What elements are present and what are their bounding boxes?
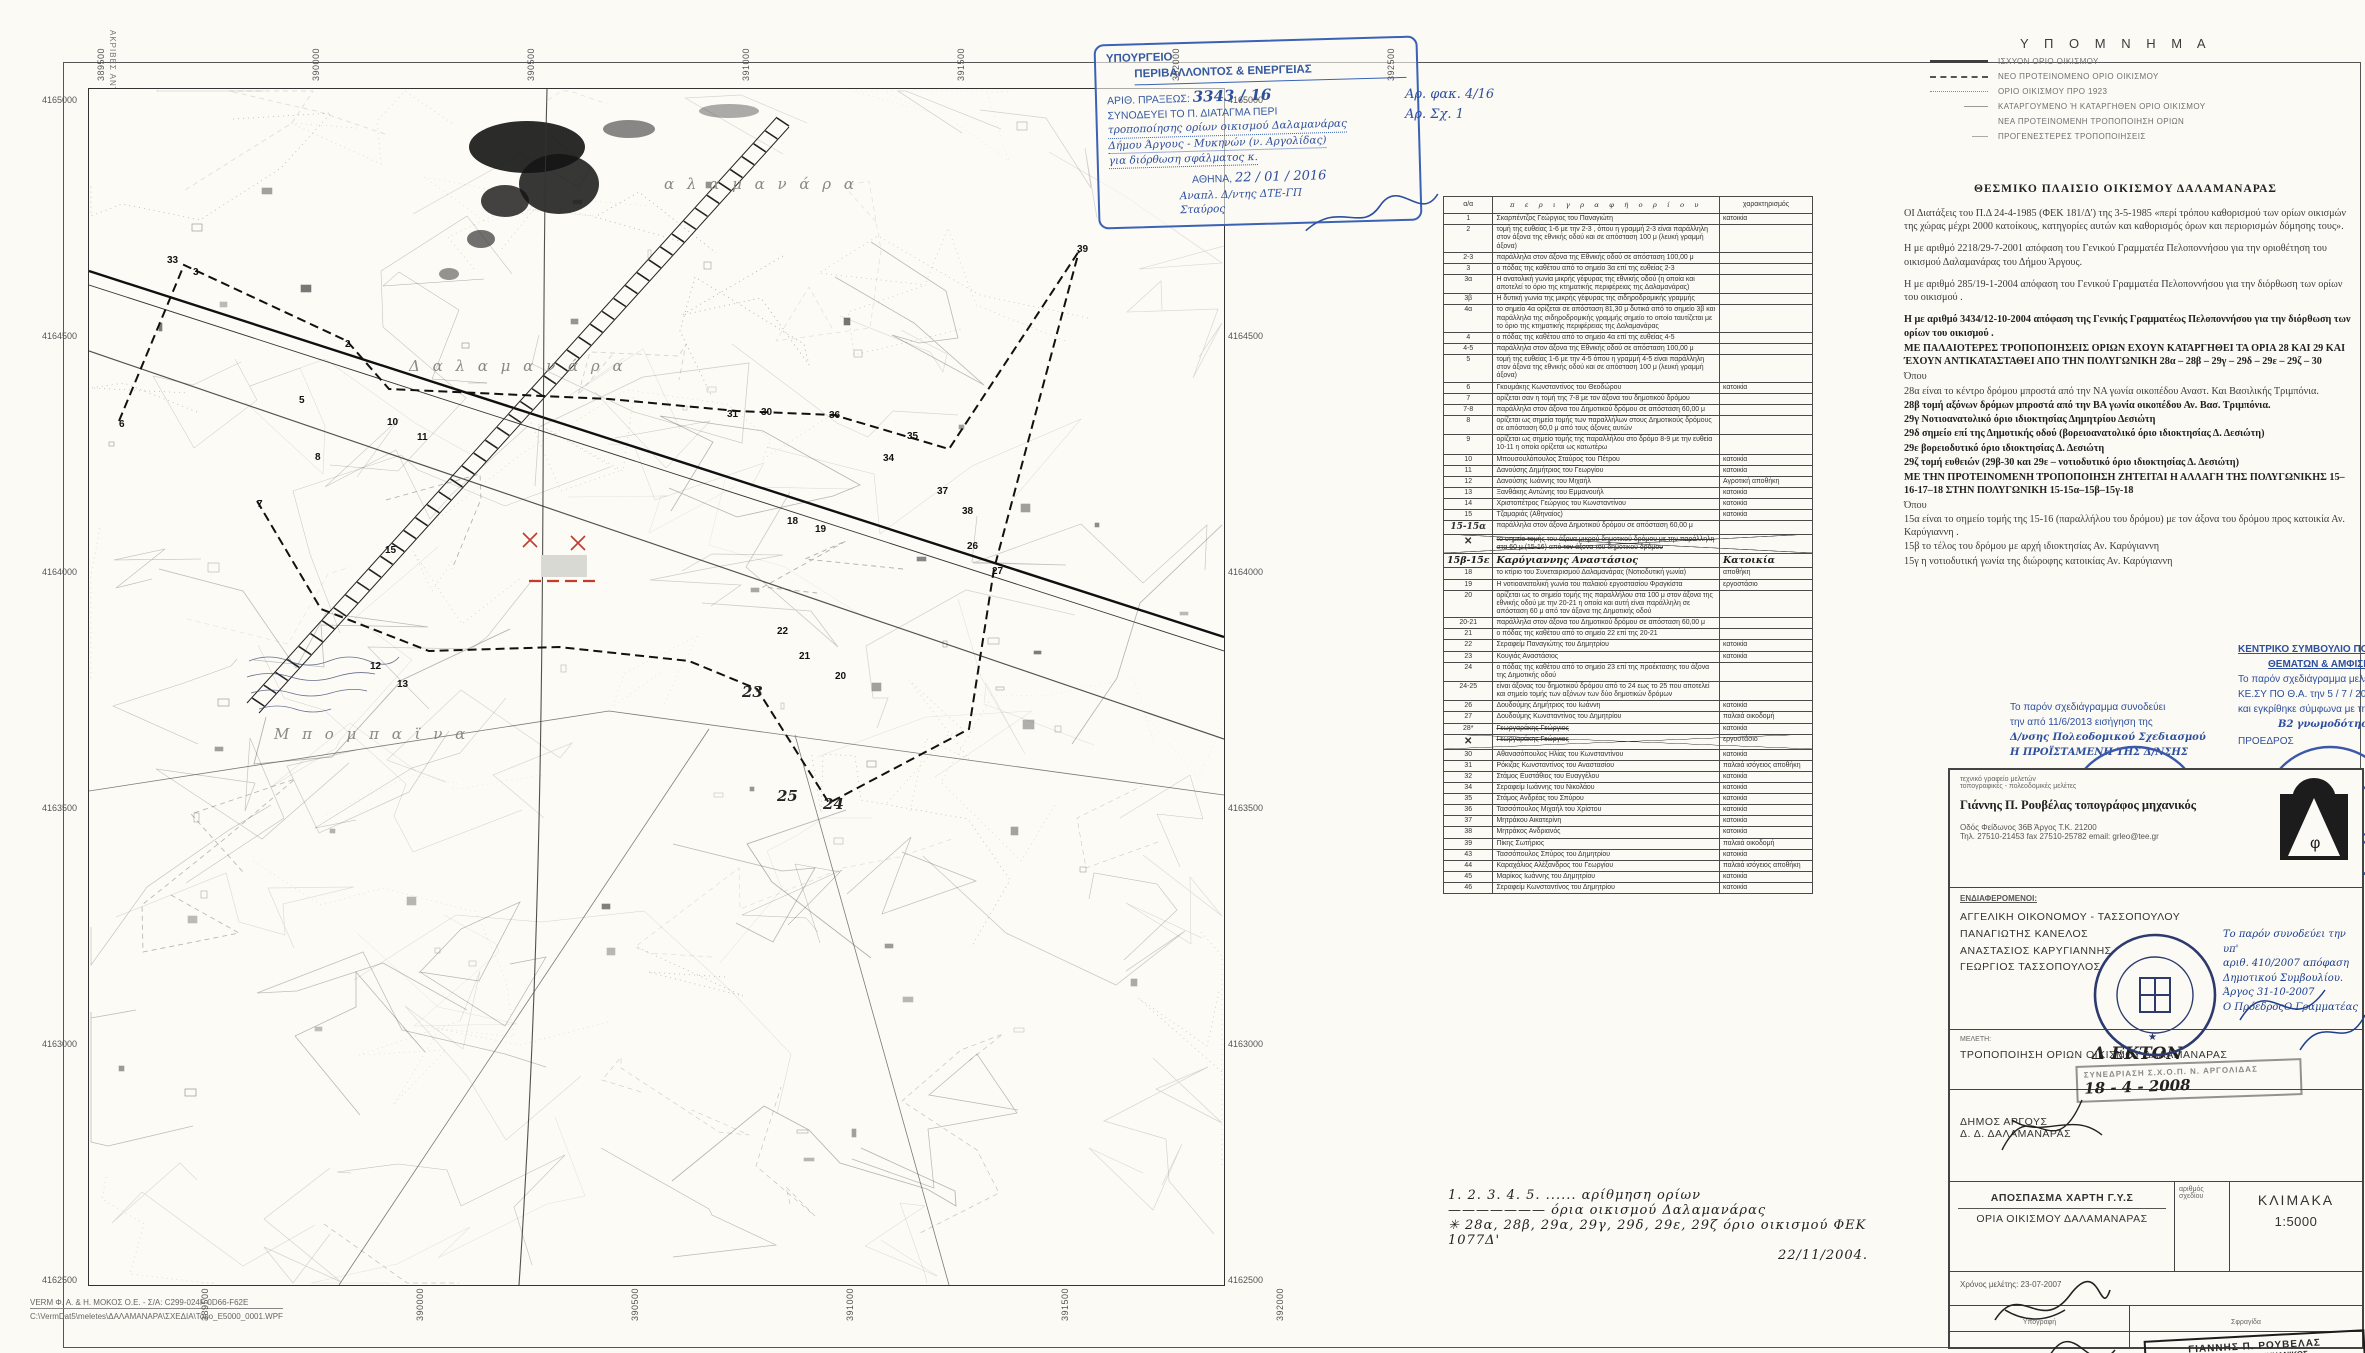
boundary-point-number: 10 [387, 417, 398, 428]
grid-coordinate: 391500 [1060, 1288, 1070, 1321]
cell-description: Γεωργαράκης Γεώργιος [1493, 723, 1720, 734]
cell-characterization: κατοικία [1720, 487, 1813, 498]
table-row: 2-3παράλληλα στον άξονα της Εθνικής οδού… [1444, 252, 1813, 263]
cell-characterization [1720, 662, 1813, 681]
cell-characterization: κατοικία [1720, 382, 1813, 393]
grid-coordinate: 4162500 [1228, 1275, 1263, 1285]
ministry-approval-stamp: ΥΠΟΥΡΓΕΙΟ ΠΕΡΙΒΑΛΛΟΝΤΟΣ & ΕΝΕΡΓΕΙΑΣ ΑΡΙΘ… [1093, 36, 1422, 230]
kesy-title1: ΚΕΝΤΡΙΚΟ ΣΥΜΒΟΥΛΙΟ ΠΟΛΕΟΔΟΜΙΚΩΝ [2238, 642, 2365, 657]
bottom-signature [1985, 1270, 2115, 1340]
cell-description: Χριστοπέτρος Γεώργιος του Κωνσταντίνου [1493, 499, 1720, 510]
boundary-point-number: 36 [829, 410, 840, 421]
legend-swatch-sw-solid [1930, 60, 1988, 63]
grid-coordinate: 390000 [311, 48, 321, 81]
grid-coordinate: 4163000 [1228, 1039, 1263, 1049]
cell-description: ορίζεται ως σημεία τομής των παραλλήλων … [1493, 415, 1720, 434]
framework-paragraph: Η με αριθμό 2218/29-7-2001 απόφαση του Γ… [1904, 242, 2356, 269]
cell-number: 46 [1444, 883, 1493, 894]
cell-characterization [1720, 435, 1813, 454]
grid-coordinate: 4165000 [42, 95, 77, 105]
cell-number: 20 [1444, 590, 1493, 617]
cell-description: Τζαμαριάς (Αθηναίος) [1493, 510, 1720, 521]
table-row: 38Μητράκος Ανδριανόςκατοικία [1444, 827, 1813, 838]
table-row: 12Δανούσης Ιωάννης του ΜιχαήλΑγροτική απ… [1444, 476, 1813, 487]
cell-number: 14 [1444, 499, 1493, 510]
table-row: 5τομή της ευθείας 1-6 με την 4-5 όπου η … [1444, 355, 1813, 382]
table-row: 4-5παράλληλα στον άξονα της Εθνικής οδού… [1444, 343, 1813, 354]
boundary-point-number: 15 [385, 545, 396, 556]
legend-label: ΟΡΙΟ ΟΙΚΙΣΜΟΥ ΠΡΟ 1923 [1998, 87, 2107, 96]
table-row: 3βΗ δυτική γωνία της μικρής γέφυρας της … [1444, 294, 1813, 305]
cell-number: 13 [1444, 487, 1493, 498]
map-legend: Υ Π Ο Μ Ν Η Μ Α ΙΣΧΥΟΝ ΟΡΙΟ ΟΙΚΙΣΜΟΥΝΕΟ … [1930, 36, 2350, 147]
boundary-point-number: 18 [787, 516, 798, 527]
framework-paragraph: 29γ Νοτιοανατολικό όριο ιδιοκτησίας Δημη… [1904, 413, 2356, 426]
grid-coordinate: 392000 [1171, 48, 1181, 81]
institutional-framework: ΘΕΣΜΙΚΟ ΠΛΑΙΣΙΟ ΟΙΚΙΣΜΟΥ ΔΑΛΑΜΑΝΑΡΑΣ ΟΙ … [1904, 182, 2356, 577]
scale-label: ΚΛΙΜΑΚΑ [2240, 1192, 2352, 1208]
legend-swatch-sw-dot [1930, 91, 1988, 92]
dir-stamp-line2: την από 11/6/2013 εισήγηση της [2010, 715, 2220, 730]
cell-number: 35 [1444, 794, 1493, 805]
boundary-point-number: 33 [167, 255, 178, 266]
table-row: 8ορίζεται ως σημεία τομής των παραλλήλων… [1444, 415, 1813, 434]
table-row: 9ορίζεται ως σημείο τομής της παραλλήλου… [1444, 435, 1813, 454]
cell-characterization [1720, 343, 1813, 354]
boundary-point-number: 39 [1077, 244, 1088, 255]
boundary-point-number: 37 [937, 486, 948, 497]
cell-description: Στάμος Ανδρέας του Σπύρου [1493, 794, 1720, 805]
cell-number: 24-25 [1444, 682, 1493, 701]
handwritten-number: 23 [742, 683, 763, 701]
cell-characterization: εργοστάσιο [1720, 579, 1813, 590]
cell-description: ορίζεται ως το σημείο τομής της παραλλήλ… [1493, 590, 1720, 617]
cell-number: 28* [1444, 723, 1493, 734]
grid-coordinate: 391500 [956, 48, 966, 81]
map-canvas: 3332567810111213153130363534373839272618… [88, 88, 1225, 1286]
cell-characterization [1720, 332, 1813, 343]
cell-description: Σεραφείμ Ιωάννης του Νικολάου [1493, 782, 1720, 793]
cell-description: Δουδούμης Δημήτριος του Ιωάννη [1493, 701, 1720, 712]
framework-paragraph: 15γ η νοτιοδυτική γωνία της διώροφης κατ… [1904, 555, 2356, 568]
grid-coordinate: 4163000 [42, 1039, 77, 1049]
table-row: 7-8παράλληλα στον άξονα του Δημοτικού δρ… [1444, 404, 1813, 415]
cell-description: Τασσόπουλος Μιχαήλ του Χρίστου [1493, 805, 1720, 816]
table-row: 4ατο σημείο 4α ορίζεται σε απόσταση 81,3… [1444, 305, 1813, 332]
cell-description: Κουγιάς Αναστάσιος [1493, 651, 1720, 662]
cell-number: 39 [1444, 838, 1493, 849]
legend-label: ΙΣΧΥΟΝ ΟΡΙΟ ΟΙΚΙΣΜΟΥ [1998, 57, 2099, 66]
cell-characterization [1720, 618, 1813, 629]
handwritten-number: 25 [777, 787, 798, 805]
place-name-label: α λ α μ α ν ά ρ α [664, 175, 858, 193]
boundary-point-number: 34 [883, 453, 894, 464]
table-row: 15-15απαράλληλα στον άξονα Δημοτικού δρό… [1444, 521, 1813, 535]
cell-number: 19 [1444, 579, 1493, 590]
table-row: 6Γκουμάκης Κωνσταντίνος του Θεοδώρουκατο… [1444, 382, 1813, 393]
legend-swatch-sw-tick [1972, 136, 1988, 137]
handwritten-table-notes: 1. 2. 3. 4. 5. ...... αρίθμηση ορίων————… [1448, 1188, 1868, 1263]
cell-number: 45 [1444, 872, 1493, 883]
cell-description: Σεραφείμ Κωνσταντίνος του Δημητρίου [1493, 883, 1720, 894]
kesy-line1: Το παρόν σχεδιάγραμμα μελετήθηκε από το [2238, 672, 2365, 687]
cell-description: Τασσόπουλος Σπύρος του Δημητρίου [1493, 849, 1720, 860]
legend-swatch-sw-dash [1930, 76, 1988, 78]
cell-description: Η νοτιοανατολική γωνία του παλαιού εργοσ… [1493, 579, 1720, 590]
grid-coordinate: 4164500 [1228, 331, 1263, 341]
table-row: 23Κουγιάς Αναστάσιοςκατοικία [1444, 651, 1813, 662]
cell-characterization: κατοικία [1720, 827, 1813, 838]
table-row: 3αΗ ανατολική γωνία μικρής γέφυρας της ε… [1444, 274, 1813, 293]
cell-number: 5 [1444, 355, 1493, 382]
table-note: 22/11/2004. [1778, 1248, 1868, 1263]
secondary-road [89, 351, 1224, 739]
table-row: ✕το σημείο τομής του άξονα μικρού δημοτι… [1444, 534, 1813, 553]
cell-number: 26 [1444, 701, 1493, 712]
plot-file-path: C:\VermDat5\meletes\ΔΑΛΑΜΑΝΑΡΑ\ΣΧΕΔΙΑ\To… [30, 1312, 283, 1321]
cell-number: 10 [1444, 454, 1493, 465]
framework-paragraph: ΜΕ ΤΗΝ ΠΡΟΤΕΙΝΟΜΕΝΗ ΤΡΟΠΟΠΟΙΗΣΗ ΖΗΤΕΙΤΑΙ… [1904, 471, 2356, 498]
file-number: Αρ. φακ. 4/16 [1405, 85, 1494, 105]
cell-description: παράλληλα στον άξονα του Δημοτικού δρόμο… [1493, 404, 1720, 415]
boundary-point-number: 35 [907, 431, 918, 442]
office-logo: φ [2278, 776, 2350, 868]
cell-description: Καραχάλιος Αλέξανδρος του Γεωργίου [1493, 860, 1720, 871]
boundary-points-table: α/α π ε ρ ι γ ρ α φ ή ο ρ ί ο υ χαρακτηρ… [1443, 196, 1813, 894]
table-row: 31Ρόκιζας Κωνσταντίνος του Αναστασίουπαλ… [1444, 760, 1813, 771]
boundary-point-number: 5 [299, 395, 305, 406]
cell-number: 7-8 [1444, 404, 1493, 415]
cell-number: 31 [1444, 760, 1493, 771]
legend-item: ΝΕΟ ΠΡΟΤΕΙΝΟΜΕΝΟ ΟΡΙΟ ΟΙΚΙΣΜΟΥ [1930, 72, 2350, 81]
boundary-point-number: 6 [119, 419, 125, 430]
interested-header: ΕΝΔΙΑΦΕΡΟΜΕΝΟΙ: [1960, 894, 2352, 903]
boundary-point-number: 31 [727, 409, 738, 420]
cell-characterization [1720, 355, 1813, 382]
cell-description: Η δυτική γωνία της μικρής γέφυρας της σι… [1493, 294, 1720, 305]
cell-description: Αθανασόπουλος Ηλίας του Κωνσταντίνου [1493, 749, 1720, 760]
table-row: 26Δουδούμης Δημήτριος του Ιωάννηκατοικία [1444, 701, 1813, 712]
grid-coordinate: 390000 [415, 1288, 425, 1321]
framework-paragraph: 15β το τέλος του δρόμου με αρχή ιδιοκτησ… [1904, 540, 2356, 553]
cell-number: 7 [1444, 393, 1493, 404]
cell-description: Δουδούμης Κωνσταντίνος του Δημητρίου [1493, 712, 1720, 723]
cell-description: τομή της ευθείας 1-6 με την 2-3 , όπου η… [1493, 225, 1720, 252]
cell-description: Ρόκιζας Κωνσταντίνος του Αναστασίου [1493, 760, 1720, 771]
apospasma-line2: ΟΡΙΑ ΟΙΚΙΣΜΟΥ ΔΑΛΑΜΑΝΑΡΑΣ [1958, 1208, 2166, 1225]
cell-characterization: κατοικία [1720, 214, 1813, 225]
cell-characterization: κατοικία [1720, 749, 1813, 760]
cell-characterization: Αγροτική αποθήκη [1720, 476, 1813, 487]
cell-number: 30 [1444, 749, 1493, 760]
cell-description: Η ανατολική γωνία μικρής γέφυρας της εθν… [1493, 274, 1720, 293]
sheet-number-note: Αρ. Σχ. 1 [1405, 105, 1494, 125]
cell-number: 4-5 [1444, 343, 1493, 354]
cell-description: Πίκης Σωτήριος [1493, 838, 1720, 849]
cell-description: παράλληλα στον άξονα του Δημοτικού δρόμο… [1493, 618, 1720, 629]
grid-coordinate: 389500 [200, 1288, 210, 1321]
table-row: 4ο πόδας της καθέτου από το σημείο 4α επ… [1444, 332, 1813, 343]
cell-characterization: κατοικία [1720, 640, 1813, 651]
cell-number: 2-3 [1444, 252, 1493, 263]
dir-stamp-line1: Το παρόν σχεδιάγραμμα συνοδεύει [2010, 700, 2220, 715]
legend-item: ΚΑΤΑΡΓΟΥΜΕΝΟ Ή ΚΑΤΑΡΓΗΘΕΝ ΟΡΙΟ ΟΙΚΙΣΜΟΥ [1930, 102, 2350, 111]
cell-number: 4α [1444, 305, 1493, 332]
cell-number: 23 [1444, 651, 1493, 662]
legend-title: Υ Π Ο Μ Ν Η Μ Α [2020, 36, 2350, 51]
cell-characterization: κατοικία [1720, 701, 1813, 712]
council-note-1: Το παρόν συνοδεύει την υπ' [2223, 928, 2358, 957]
cell-characterization: κατοικία [1720, 816, 1813, 827]
revision-marks-red [523, 533, 595, 581]
cell-characterization: κατοικία [1720, 872, 1813, 883]
boundary-point-number: 7 [257, 499, 263, 510]
table-row: ✕Γεωργαράκης Γεώργιοςεργοστάσιο [1444, 734, 1813, 749]
boundary-point-number: 11 [417, 432, 428, 443]
cell-description: είναι άξονας του δημοτικού δρόμου από το… [1493, 682, 1720, 701]
cell-description: παράλληλα στον άξονα της Εθνικής οδού σε… [1493, 252, 1720, 263]
boundary-point-number: 22 [777, 626, 788, 637]
cell-characterization: κατοικία [1720, 499, 1813, 510]
cell-description: παράλληλα στον άξονα της Εθνικής οδού σε… [1493, 343, 1720, 354]
kesy-title2: ΘΕΜΑΤΩΝ & ΑΜΦΙΣΒΗΤΗΣΕΩΝ [2268, 657, 2365, 672]
table-row: 18το κτίριο του Συνεταιρισμού Δαλαμανάρα… [1444, 568, 1813, 579]
cell-number: 3β [1444, 294, 1493, 305]
council-signatures [2230, 960, 2365, 1070]
table-row: 14Χριστοπέτρος Γεώργιος του Κωνσταντίνου… [1444, 499, 1813, 510]
cell-number: 32 [1444, 771, 1493, 782]
place-name-label: Δ α λ α μ α ν ά ρ α [409, 357, 627, 375]
table-row: 3ο πόδας της καθέτου από το σημείο 3α επ… [1444, 263, 1813, 274]
cell-description: Δανούσης Ιωάννης του Μιχαήλ [1493, 476, 1720, 487]
table-row: 20-21παράλληλα στον άξονα του Δημοτικού … [1444, 618, 1813, 629]
framework-paragraph: 29ζ τομή ευθειών (29β-30 και 29ε – νοτιο… [1904, 456, 2356, 469]
cell-characterization [1720, 393, 1813, 404]
dekton-signature [1992, 1080, 2112, 1170]
framework-paragraph: ΜΕ ΠΑΛΑΙΟΤΕΡΕΣ ΤΡΟΠΟΠΟΙΗΣΕΙΣ ΟΡΙΩΝ ΕΧΟΥΝ… [1904, 342, 2356, 369]
svg-text:★: ★ [2148, 1032, 2157, 1043]
cell-characterization: κατοικία [1720, 794, 1813, 805]
boundary-point-number: 8 [315, 452, 321, 463]
cell-description: Μητράκου Αικατερίνη [1493, 816, 1720, 827]
cell-number: 15-15α [1444, 521, 1493, 535]
table-row: 37Μητράκου Αικατερίνηκατοικία [1444, 816, 1813, 827]
legend-label: ΝΕΟ ΠΡΟΤΕΙΝΟΜΕΝΟ ΟΡΙΟ ΟΙΚΙΣΜΟΥ [1998, 72, 2159, 81]
cell-characterization: αποθήκη [1720, 568, 1813, 579]
table-row: 15Τζαμαριάς (Αθηναίος)κατοικία [1444, 510, 1813, 521]
table-row: 28*Γεωργαράκης Γεώργιοςκατοικία [1444, 723, 1813, 734]
cell-characterization: παλαιά οικοδομή [1720, 712, 1813, 723]
cell-characterization [1720, 404, 1813, 415]
table-row: 24-25είναι άξονας του δημοτικού δρόμου α… [1444, 682, 1813, 701]
boundary-point-number: 30 [761, 407, 772, 418]
table-row: 35Στάμος Ανδρέας του Σπύρουκατοικία [1444, 794, 1813, 805]
cell-number: 21 [1444, 629, 1493, 640]
cell-characterization: κατοικία [1720, 465, 1813, 476]
cell-number: 36 [1444, 805, 1493, 816]
table-row: 27Δουδούμης Κωνσταντίνος του Δημητρίουπα… [1444, 712, 1813, 723]
framework-paragraph: 29δ σημείο επί της Δημοτικής οδού (βορει… [1904, 427, 2356, 440]
cell-characterization [1720, 521, 1813, 535]
cell-description: το σημείο 4α ορίζεται σε απόσταση 81,30 … [1493, 305, 1720, 332]
framework-paragraph: 29ε βορειοδυτικό όριο ιδιοκτησίας Δ. Δεσ… [1904, 442, 2356, 455]
cell-characterization [1720, 274, 1813, 293]
col-header-num: α/α [1444, 197, 1493, 214]
legend-item: ΝΕΑ ΠΡΟΤΕΙΝΟΜΕΝΗ ΤΡΟΠΟΠΟΙΗΣΗ ΟΡΙΩΝ [1930, 117, 2350, 126]
table-row: 46Σεραφείμ Κωνσταντίνος του Δημητρίουκατ… [1444, 883, 1813, 894]
framework-paragraph: 15α είναι το σημείο τομής της 15-16 (παρ… [1904, 513, 2356, 540]
cell-description: το σημείο τομής του άξονα μικρού δημοτικ… [1493, 534, 1720, 553]
table-row: 36Τασσόπουλος Μιχαήλ του Χρίστουκατοικία [1444, 805, 1813, 816]
cell-characterization: κατοικία [1720, 849, 1813, 860]
framework-paragraph: ΟΙ Διατάξεις του Π.Δ 24-4-1985 (ΦΕΚ 181/… [1904, 207, 2356, 234]
cell-number: 44 [1444, 860, 1493, 871]
table-row: 30Αθανασόπουλος Ηλίας του Κωνσταντίνουκα… [1444, 749, 1813, 760]
cell-description: ο πόδας της καθέτου από το σημείο 3α επί… [1493, 263, 1720, 274]
cell-characterization: παλαιά ισόγειος αποθήκη [1720, 860, 1813, 871]
boundary-point-number: 26 [967, 541, 978, 552]
cell-characterization [1720, 534, 1813, 553]
cell-number: 22 [1444, 640, 1493, 651]
cell-characterization: κατοικία [1720, 782, 1813, 793]
plot-software-id: VERM Φ. Α. & Η. ΜΟΚΟΣ Ο.Ε. - Σ/Α: C299-0… [30, 1298, 283, 1309]
cell-characterization [1720, 415, 1813, 434]
interested-party: ΑΓΓΕΛΙΚΗ ΟΙΚΟΝΟΜΟΥ - ΤΑΣΣΟΠΟΥΛΟΥ [1960, 909, 2352, 926]
table-row: 39Πίκης Σωτήριοςπαλαιά οικοδομή [1444, 838, 1813, 849]
topographic-map-drawing [89, 89, 1224, 1285]
cell-number: 38 [1444, 827, 1493, 838]
village-road [519, 89, 547, 1285]
cell-characterization: κατοικία [1720, 771, 1813, 782]
cell-description: παράλληλα στον άξονα Δημοτικού δρόμου σε… [1493, 521, 1720, 535]
grid-coordinate: 4164500 [42, 331, 77, 341]
cell-description: Μπουσουλόπουλος Σταύρος του Πέτρου [1493, 454, 1720, 465]
table-row: 1Σκαρπέντζος Γεώργιος του Παναγιώτηκατοι… [1444, 214, 1813, 225]
kesy-line2: ΚΕ.ΣΥ ΠΟ Θ.Α. την 5 / 7 / 2013 [2238, 689, 2365, 700]
apospasma-line1: ΑΠΟΣΠΑΣΜΑ ΧΑΡΤΗ Γ.Υ.Σ [1958, 1192, 2166, 1204]
cell-characterization: παλαιά οικοδομή [1720, 838, 1813, 849]
table-note: ✳ 28α, 28β, 29α, 29γ, 29δ, 29ε, 29ζ όριο… [1448, 1218, 1868, 1248]
table-row: 34Σεραφείμ Ιωάννης του Νικολάουκατοικία [1444, 782, 1813, 793]
cell-characterization [1720, 252, 1813, 263]
cell-description: Γεωργαράκης Γεώργιος [1493, 734, 1720, 749]
cell-characterization [1720, 305, 1813, 332]
col-header-desc: π ε ρ ι γ ρ α φ ή ο ρ ί ο υ [1493, 197, 1720, 214]
place-name-label: Μ π ο μ π α ϊ ν α [274, 725, 469, 743]
cell-description: ορίζεται ως σημείο τομής της παραλλήλου … [1493, 435, 1720, 454]
framework-paragraph: 28α είναι το κέντρο δρόμου μπροστά από τ… [1904, 385, 2356, 398]
grid-coordinate: 392500 [1386, 48, 1396, 81]
cell-description: Δανούσης Δημήτριος του Γεωργίου [1493, 465, 1720, 476]
legend-label: ΚΑΤΑΡΓΟΥΜΕΝΟ Ή ΚΑΤΑΡΓΗΘΕΝ ΟΡΙΟ ΟΙΚΙΣΜΟΥ [1998, 102, 2205, 111]
cell-characterization: κατοικία [1720, 805, 1813, 816]
legend-label: ΠΡΟΓΕΝΕΣΤΕΡΕΣ ΤΡΟΠΟΠΟΙΗΣΕΙΣ [1998, 132, 2146, 141]
cell-number: 3α [1444, 274, 1493, 293]
framework-paragraph: Όπου [1904, 499, 2356, 512]
framework-paragraph: Όπου [1904, 370, 2356, 383]
cell-number: 27 [1444, 712, 1493, 723]
framework-title: ΘΕΣΜΙΚΟ ΠΛΑΙΣΙΟ ΟΙΚΙΣΜΟΥ ΔΑΛΑΜΑΝΑΡΑΣ [1974, 182, 2356, 197]
grid-coordinate: 4165000 [1228, 95, 1263, 105]
grid-coordinate: 4163500 [42, 803, 77, 813]
cell-description: Σεραφείμ Παναγιώτης του Δημητρίου [1493, 640, 1720, 651]
grid-coordinate: 389500 [96, 48, 106, 81]
boundary-point-number: 38 [962, 506, 973, 517]
cell-description: τομή της ευθείας 1-6 με την 4-5 όπου η γ… [1493, 355, 1720, 382]
table-row: 11Δανούσης Δημήτριος του Γεωργίουκατοικί… [1444, 465, 1813, 476]
grid-coordinate: 391000 [845, 1288, 855, 1321]
cell-number: 4 [1444, 332, 1493, 343]
cell-number: 2 [1444, 225, 1493, 252]
table-row: 13Ξανθάκης Αντώνης του Εμμανουήλκατοικία [1444, 487, 1813, 498]
table-row: 21ο πόδας της καθέτου από το σημείο 22 ε… [1444, 629, 1813, 640]
cell-description: Στάμος Ευστάθιος του Ευαγγέλου [1493, 771, 1720, 782]
table-row: 2τομή της ευθείας 1-6 με την 2-3 , όπου … [1444, 225, 1813, 252]
stamp-header: Σφραγίδα [2231, 1319, 2261, 1326]
cell-characterization: κατοικία [1720, 510, 1813, 521]
cell-number: 43 [1444, 849, 1493, 860]
table-note: ——————— όρια οικισμού Δαλαμανάρας [1448, 1203, 1868, 1218]
cell-characterization [1720, 590, 1813, 617]
cell-number: 34 [1444, 782, 1493, 793]
praxis-label: ΑΡΙΘ. ΠΡΑΞΕΩΣ: [1107, 93, 1190, 107]
cell-description: Μαρίκος Ιωάννης του Δημητρίου [1493, 872, 1720, 883]
cell-description: ορίζεται σαν η τομή της 7-8 με τον άξονα… [1493, 393, 1720, 404]
cell-number: 24 [1444, 662, 1493, 681]
grid-coordinate: 390500 [630, 1288, 640, 1321]
cell-number: 37 [1444, 816, 1493, 827]
cell-description: Γκουμάκης Κωνσταντίνος του Θεοδώρου [1493, 382, 1720, 393]
table-header-row: α/α π ε ρ ι γ ρ α φ ή ο ρ ί ο υ χαρακτηρ… [1444, 197, 1813, 214]
boundary-point-number: 27 [992, 566, 1003, 577]
scanned-map-sheet: ΑΚΡΙΒΕΣ ΑΝΤΙΓΡΑΦΟ ΜΑΓΔΑΛΗΝΗ ΜΠΕΛΕ [0, 0, 2365, 1353]
cell-number: ✕ [1444, 734, 1493, 749]
cell-number: 6 [1444, 382, 1493, 393]
table-row: 22Σεραφείμ Παναγιώτης του Δημητρίουκατοι… [1444, 640, 1813, 651]
grid-coordinate: 390500 [526, 48, 536, 81]
cell-number: ✕ [1444, 534, 1493, 553]
table-row: 32Στάμος Ευστάθιος του Ευαγγέλουκατοικία [1444, 771, 1813, 782]
cell-characterization: κατοικία [1720, 723, 1813, 734]
cell-characterization [1720, 294, 1813, 305]
settlement-boundary [119, 251, 1079, 803]
boundary-point-number: 13 [397, 679, 408, 690]
cell-characterization: κατοικία [1720, 454, 1813, 465]
table-row: 7ορίζεται σαν η τομή της 7-8 με τον άξον… [1444, 393, 1813, 404]
sheet-no-label2: σχεδίου [2179, 1193, 2225, 1200]
table-row: 19Η νοτιοανατολική γωνία του παλαιού εργ… [1444, 579, 1813, 590]
kesy-line3: και εγκρίθηκε σύμφωνα με την υπ' αριθμ [2238, 702, 2365, 717]
village-road-2 [89, 711, 1224, 1285]
stamp-date-handwritten: 22 / 01 / 2016 [1235, 168, 1327, 186]
table-row: 20ορίζεται ως το σημείο τομής της παραλλ… [1444, 590, 1813, 617]
table-row: 24ο πόδας της καθέτου από το σημείο 23 ε… [1444, 662, 1813, 681]
cell-characterization [1720, 629, 1813, 640]
legend-label: ΝΕΑ ΠΡΟΤΕΙΝΟΜΕΝΗ ΤΡΟΠΟΠΟΙΗΣΗ ΟΡΙΩΝ [1998, 117, 2184, 126]
grid-coordinate: 4162500 [42, 1275, 77, 1285]
cell-characterization [1720, 225, 1813, 252]
legend-item: ΙΣΧΥΟΝ ΟΡΙΟ ΟΙΚΙΣΜΟΥ [1930, 57, 2350, 66]
col-header-char: χαρακτηρισμός [1720, 197, 1813, 214]
cell-number: 12 [1444, 476, 1493, 487]
grid-coordinate: 4164000 [1228, 567, 1263, 577]
grid-coordinate: 4164000 [42, 567, 77, 577]
cell-characterization: εργοστάσιο [1720, 734, 1813, 749]
athens-label: ΑΘΗΝΑ, [1192, 173, 1232, 186]
cell-number: 11 [1444, 465, 1493, 476]
legend-swatch-sw-blank [1930, 121, 1988, 122]
table-row: 43Τασσόπουλος Σπύρος του Δημητρίουκατοικ… [1444, 849, 1813, 860]
